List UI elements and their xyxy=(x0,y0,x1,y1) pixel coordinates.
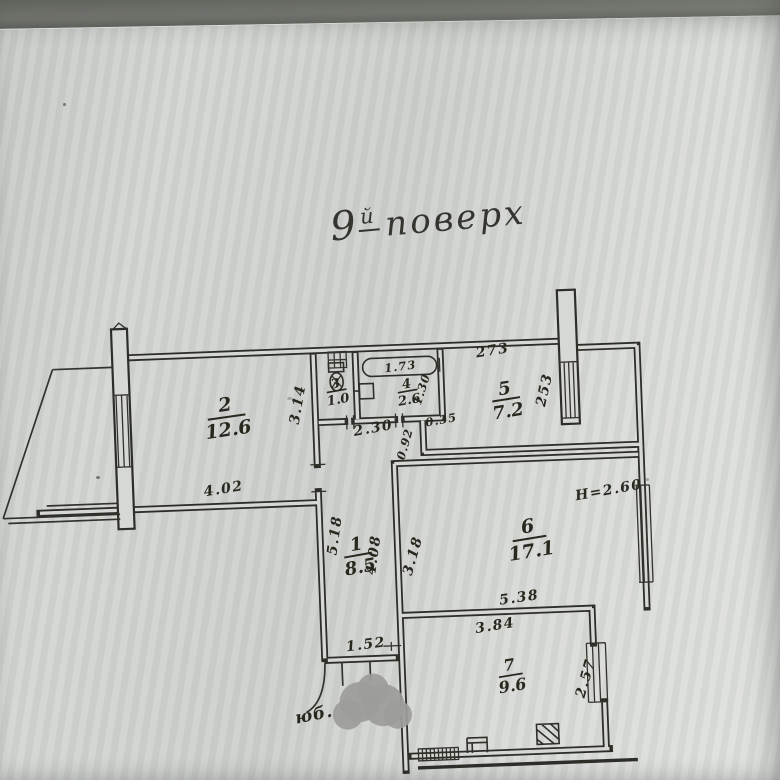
dim-kitchen-top: 3.84 xyxy=(474,615,516,637)
svg-text:1: 1 xyxy=(348,533,364,556)
room5-label: 5 7.2 xyxy=(487,376,525,424)
dim-room2-depth: 3.14 xyxy=(287,383,310,425)
dim-vestibule-width: 1.52 xyxy=(345,634,387,655)
dim-room5-depth: 253 xyxy=(533,372,556,409)
stove-icon xyxy=(536,724,559,745)
dim-tick xyxy=(439,358,440,372)
handwritten-note: юб. xyxy=(293,701,334,728)
loggia-outline xyxy=(0,367,120,523)
svg-text:7.2: 7.2 xyxy=(491,399,525,425)
dim-room6-left: 4.08 xyxy=(363,534,384,576)
dim-kitchen-side: 2.57 xyxy=(572,657,599,701)
vent-shaft-column xyxy=(557,290,580,425)
svg-text:7: 7 xyxy=(502,655,516,676)
floor-number: 9 xyxy=(328,202,360,250)
room6-label: 6 17.1 xyxy=(503,512,556,566)
dim-room6-wall: 3.18 xyxy=(400,534,426,577)
svg-text:5: 5 xyxy=(497,378,513,401)
scanned-floor-plan-page: 9йповерх xyxy=(0,0,780,780)
lower-section-wall xyxy=(418,760,638,768)
room3-label: 3 1.0 xyxy=(323,375,351,410)
dim-room6-width: 5.38 xyxy=(498,587,540,609)
dim-ceiling-height: H=2.60 xyxy=(573,477,644,505)
dim-bath-width: 1.30 xyxy=(410,372,433,407)
dim-room2-width: 4.02 xyxy=(203,478,245,500)
svg-text:9.6: 9.6 xyxy=(497,674,528,697)
room7-label: 7 9.6 xyxy=(494,653,528,697)
dim-passage-depth: 0.35 xyxy=(424,410,458,429)
floor-plan-drawing: 2 12.6 3 1.0 4 2.6 5 7.2 1 8.5 6 17.1 xyxy=(0,244,730,780)
svg-text:6: 6 xyxy=(519,515,536,539)
room2-label: 2 12.6 xyxy=(200,391,253,444)
floor-suffix: й xyxy=(357,203,380,232)
ink-speck xyxy=(63,103,66,106)
dim-hall-length: 5.18 xyxy=(324,514,345,556)
svg-text:1.0: 1.0 xyxy=(326,391,351,410)
svg-text:2: 2 xyxy=(216,393,233,417)
dim-passage-width: 0.92 xyxy=(394,427,416,462)
dim-tub-length: 1.73 xyxy=(383,357,417,375)
